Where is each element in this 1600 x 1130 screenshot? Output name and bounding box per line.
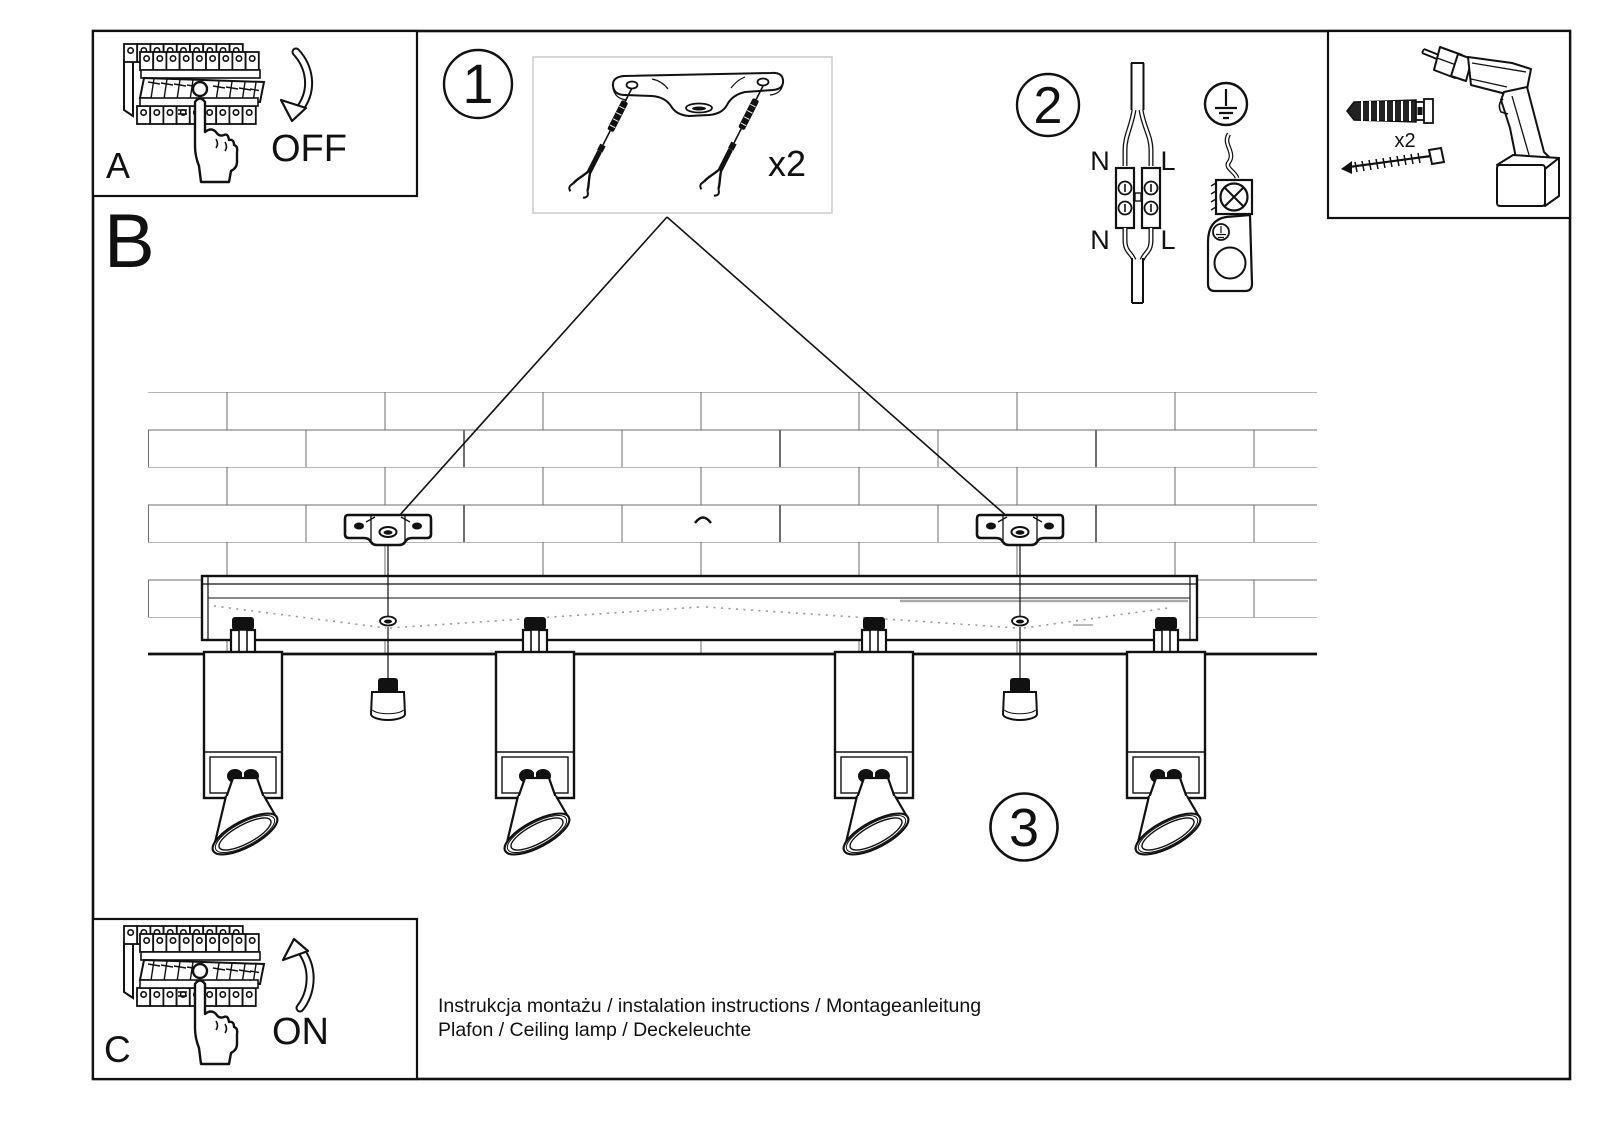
plug-quantity: x2 xyxy=(1394,130,1415,152)
bracket-quantity: x2 xyxy=(768,143,806,184)
instruction-sheet: 3 1 x2 2 N L xyxy=(0,0,1600,1130)
hanging-screw-icon xyxy=(1003,678,1037,720)
step-a-label: A xyxy=(106,145,130,186)
power-state-on: ON xyxy=(272,1011,329,1053)
step-a-panel: OFF A xyxy=(93,31,417,196)
wire-label-n-top: N xyxy=(1090,146,1110,176)
spotlight-icon xyxy=(204,617,283,862)
spotlight-icon xyxy=(835,617,914,862)
step-2-number: 2 xyxy=(1034,77,1063,135)
lamp-cable xyxy=(1125,228,1151,303)
ground-terminal-icon xyxy=(1208,134,1252,291)
rail-screw-hole xyxy=(1012,617,1028,626)
ceiling-rail xyxy=(202,576,1197,640)
terminal-block-icon xyxy=(1116,168,1160,228)
footer-line-1: Instrukcja montażu / instalation instruc… xyxy=(438,995,981,1017)
hanging-screw-icon xyxy=(371,678,405,720)
mains-cable xyxy=(1125,63,1151,166)
power-state-off: OFF xyxy=(271,128,347,170)
step-3-number: 3 xyxy=(1009,798,1039,858)
ground-symbol-icon xyxy=(1205,83,1247,125)
step-c-label: C xyxy=(104,1029,131,1070)
step-1-detail: 1 x2 xyxy=(444,50,832,213)
spotlight-icon xyxy=(496,617,575,862)
step-c-panel: ON C xyxy=(93,919,417,1079)
wire-label-l-bottom: L xyxy=(1160,225,1175,255)
section-b-label: B xyxy=(104,199,155,284)
tools-box: x2 xyxy=(1328,31,1570,218)
footer-line-2: Plafon / Ceiling lamp / Deckeleuchte xyxy=(438,1019,751,1041)
wire-label-l-top: L xyxy=(1160,146,1175,176)
step-2-wiring: 2 N L N L xyxy=(1017,63,1252,303)
rail-screw-hole xyxy=(380,617,396,626)
spotlight-icon xyxy=(1127,617,1206,862)
step-3-badge: 3 xyxy=(991,794,1058,861)
wall-plug-icon xyxy=(1347,99,1433,123)
wire-label-n-bottom: N xyxy=(1090,225,1110,255)
step-1-number: 1 xyxy=(462,52,493,115)
